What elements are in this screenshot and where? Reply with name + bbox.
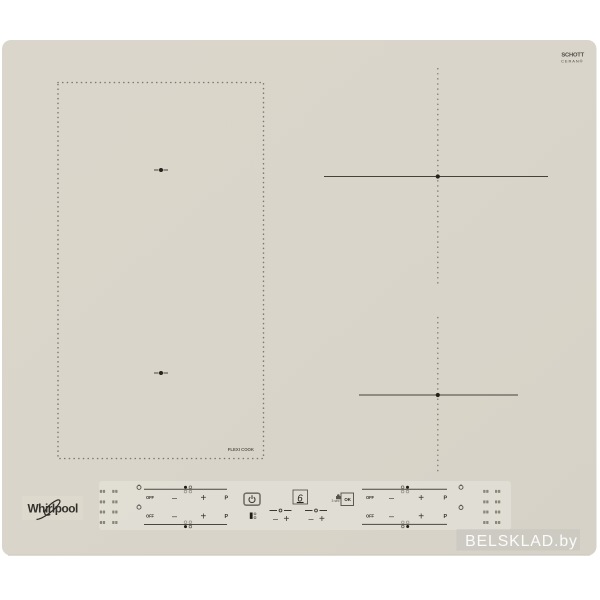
svg-text:+: + [319, 514, 325, 525]
svg-text:+: + [418, 512, 424, 523]
svg-text:OFF: OFF [366, 514, 374, 519]
svg-text:OFF: OFF [146, 495, 154, 500]
svg-text:P: P [444, 514, 448, 520]
svg-text:–: – [172, 493, 177, 503]
svg-text:–: – [389, 511, 394, 521]
svg-text:+: + [418, 493, 424, 504]
svg-text:+: + [201, 512, 207, 523]
svg-text:+: + [284, 514, 290, 525]
svg-text:OFF: OFF [366, 495, 374, 500]
svg-text:–: – [309, 514, 314, 524]
svg-text:+: + [201, 493, 207, 504]
svg-text:–: – [389, 493, 394, 503]
svg-text:BELSKLAD.by: BELSKLAD.by [465, 533, 578, 550]
svg-text:CERAN®: CERAN® [561, 59, 583, 64]
svg-text:P: P [225, 496, 229, 502]
svg-text:–: – [172, 511, 177, 521]
svg-text:FLEXI COOK: FLEXI COOK [228, 447, 255, 452]
svg-text:OFF: OFF [146, 514, 154, 519]
svg-text:OK: OK [344, 497, 351, 502]
svg-text:P: P [444, 496, 448, 502]
svg-text:P: P [225, 514, 229, 520]
svg-text:Whirlpool: Whirlpool [28, 502, 79, 516]
svg-text:–: – [273, 514, 278, 524]
svg-text:3 sec: 3 sec [332, 499, 340, 503]
